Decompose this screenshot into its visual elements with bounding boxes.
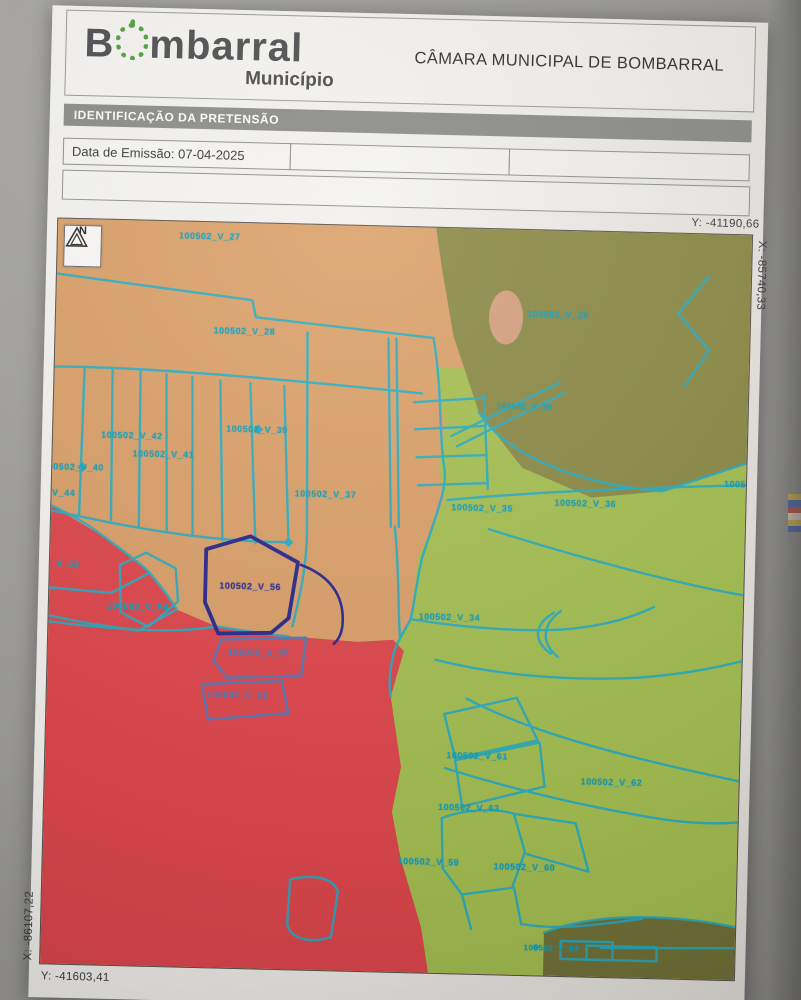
cadastral-map: 100502_V_27100502_V_28100502_V_26100502_… (39, 217, 753, 981)
parcel-label: 100502_V_62 (581, 776, 643, 788)
parcel-label: 100502_V_28 (213, 325, 275, 337)
parcel-label: 100502_V_53 (39, 558, 79, 570)
empty-field-1 (290, 143, 511, 175)
coord-top-right-y: Y: -41190,66 (691, 217, 759, 231)
parcel-label: 100502_V_59 (398, 856, 460, 868)
scanned-document-photo: Bmbarral Município CÂMARA MUNICIPAL DE B… (0, 0, 801, 1000)
emission-date-field: Data de Emissão: 07-04-2025 (63, 138, 292, 171)
parcel-label: 100502_V_35 (451, 502, 513, 514)
parcel-label: 100502_V_44 (39, 486, 75, 498)
north-arrow-icon (65, 226, 90, 249)
coord-right-x: X: -85740,33 (754, 241, 768, 311)
parcel-label: 100502_V_27 (179, 230, 241, 242)
parcel-label: 100502_V_63 (438, 802, 500, 814)
parcel-label-layer: 100502_V_27100502_V_28100502_V_26100502_… (40, 218, 752, 980)
parcel-label: 100502_V_37 (295, 488, 357, 500)
bombarral-logo: Bmbarral Município (65, 11, 385, 103)
parcel-label: 100502_V_61 (446, 750, 508, 762)
parcel-label: 100502_V_36 (554, 498, 616, 510)
parcel-label: 100502_V_57 (228, 647, 290, 659)
parcel-label: 100502_V_31 (724, 479, 753, 491)
parcel-label: 100502_V_54 (107, 601, 169, 613)
parcel-label: 100502_V_26 (527, 309, 589, 321)
parcel-label: 100502_V_60 (493, 861, 555, 873)
coord-left-x: X: -86107,22 (22, 890, 36, 960)
parcel-label: 100502_V_34 (419, 611, 481, 623)
logo-subtitle: Município (84, 64, 334, 92)
background-object (788, 494, 801, 532)
parcel-label: 100502_V_41 (132, 448, 194, 460)
page-title: CÂMARA MUNICIPAL DE BOMBARRAL (383, 18, 755, 111)
parcel-label: 100502_V_56 (219, 581, 281, 593)
document-header: Bmbarral Município CÂMARA MUNICIPAL DE B… (64, 10, 756, 113)
logo-wordmark: Bmbarral (84, 19, 385, 71)
parcel-label: 100502_V_40 (42, 461, 104, 473)
parcel-label: 100502_V_42 (101, 430, 163, 442)
document-page: Bmbarral Município CÂMARA MUNICIPAL DE B… (28, 5, 768, 1000)
north-arrow: N (63, 225, 102, 268)
parcel-label: 100502_V_30 (497, 401, 553, 411)
empty-field-2 (508, 148, 750, 181)
leaf-ring-icon (115, 23, 149, 61)
coord-bottom-y: Y: -41603,41 (41, 970, 110, 984)
parcel-label: 100502_V_39 (226, 424, 288, 436)
parcel-label: 100502_V_64 (524, 943, 580, 953)
parcel-label: 100502_V_58 (207, 689, 269, 701)
